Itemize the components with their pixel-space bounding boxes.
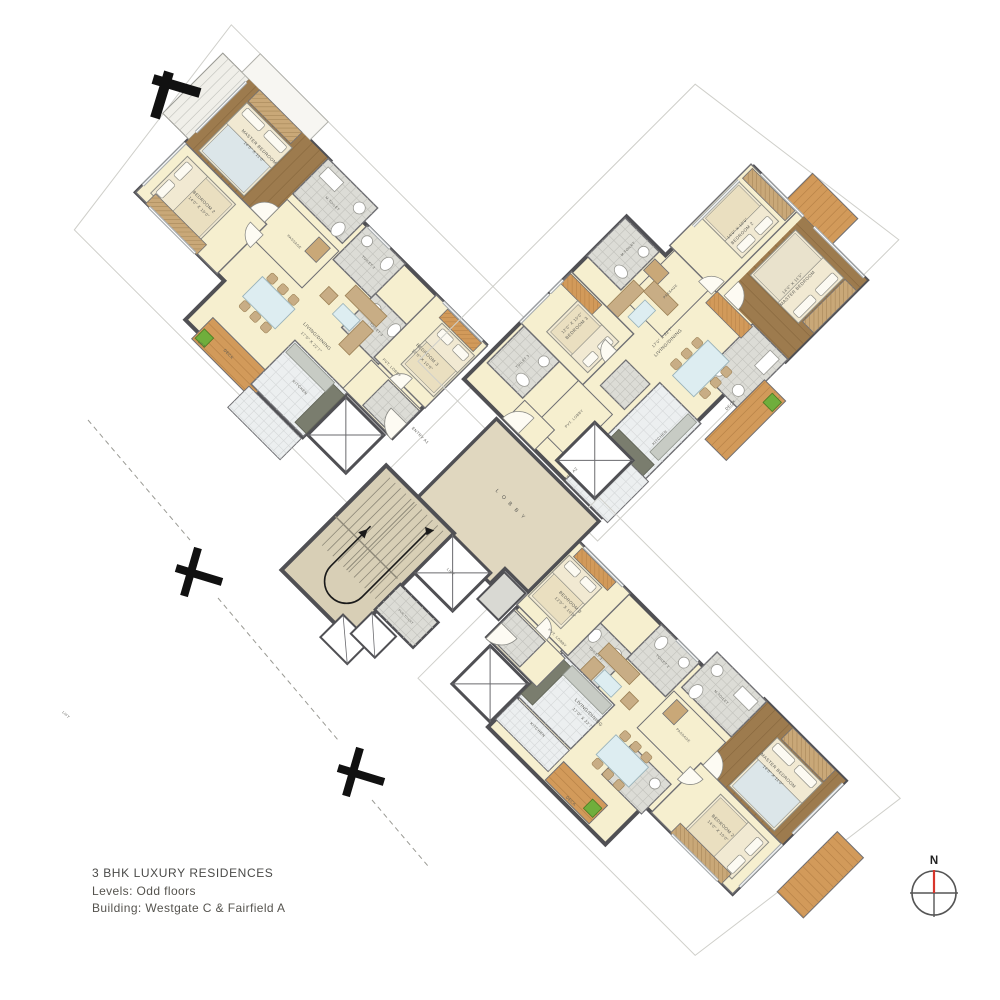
svg-text:Building: Westgate C & Fairfie: Building: Westgate C & Fairfield A (92, 901, 285, 915)
svg-text:3 BHK LUXURY RESIDENCES: 3 BHK LUXURY RESIDENCES (92, 866, 273, 880)
svg-text:Levels: Odd floors: Levels: Odd floors (92, 884, 196, 898)
svg-text:N: N (930, 855, 938, 867)
